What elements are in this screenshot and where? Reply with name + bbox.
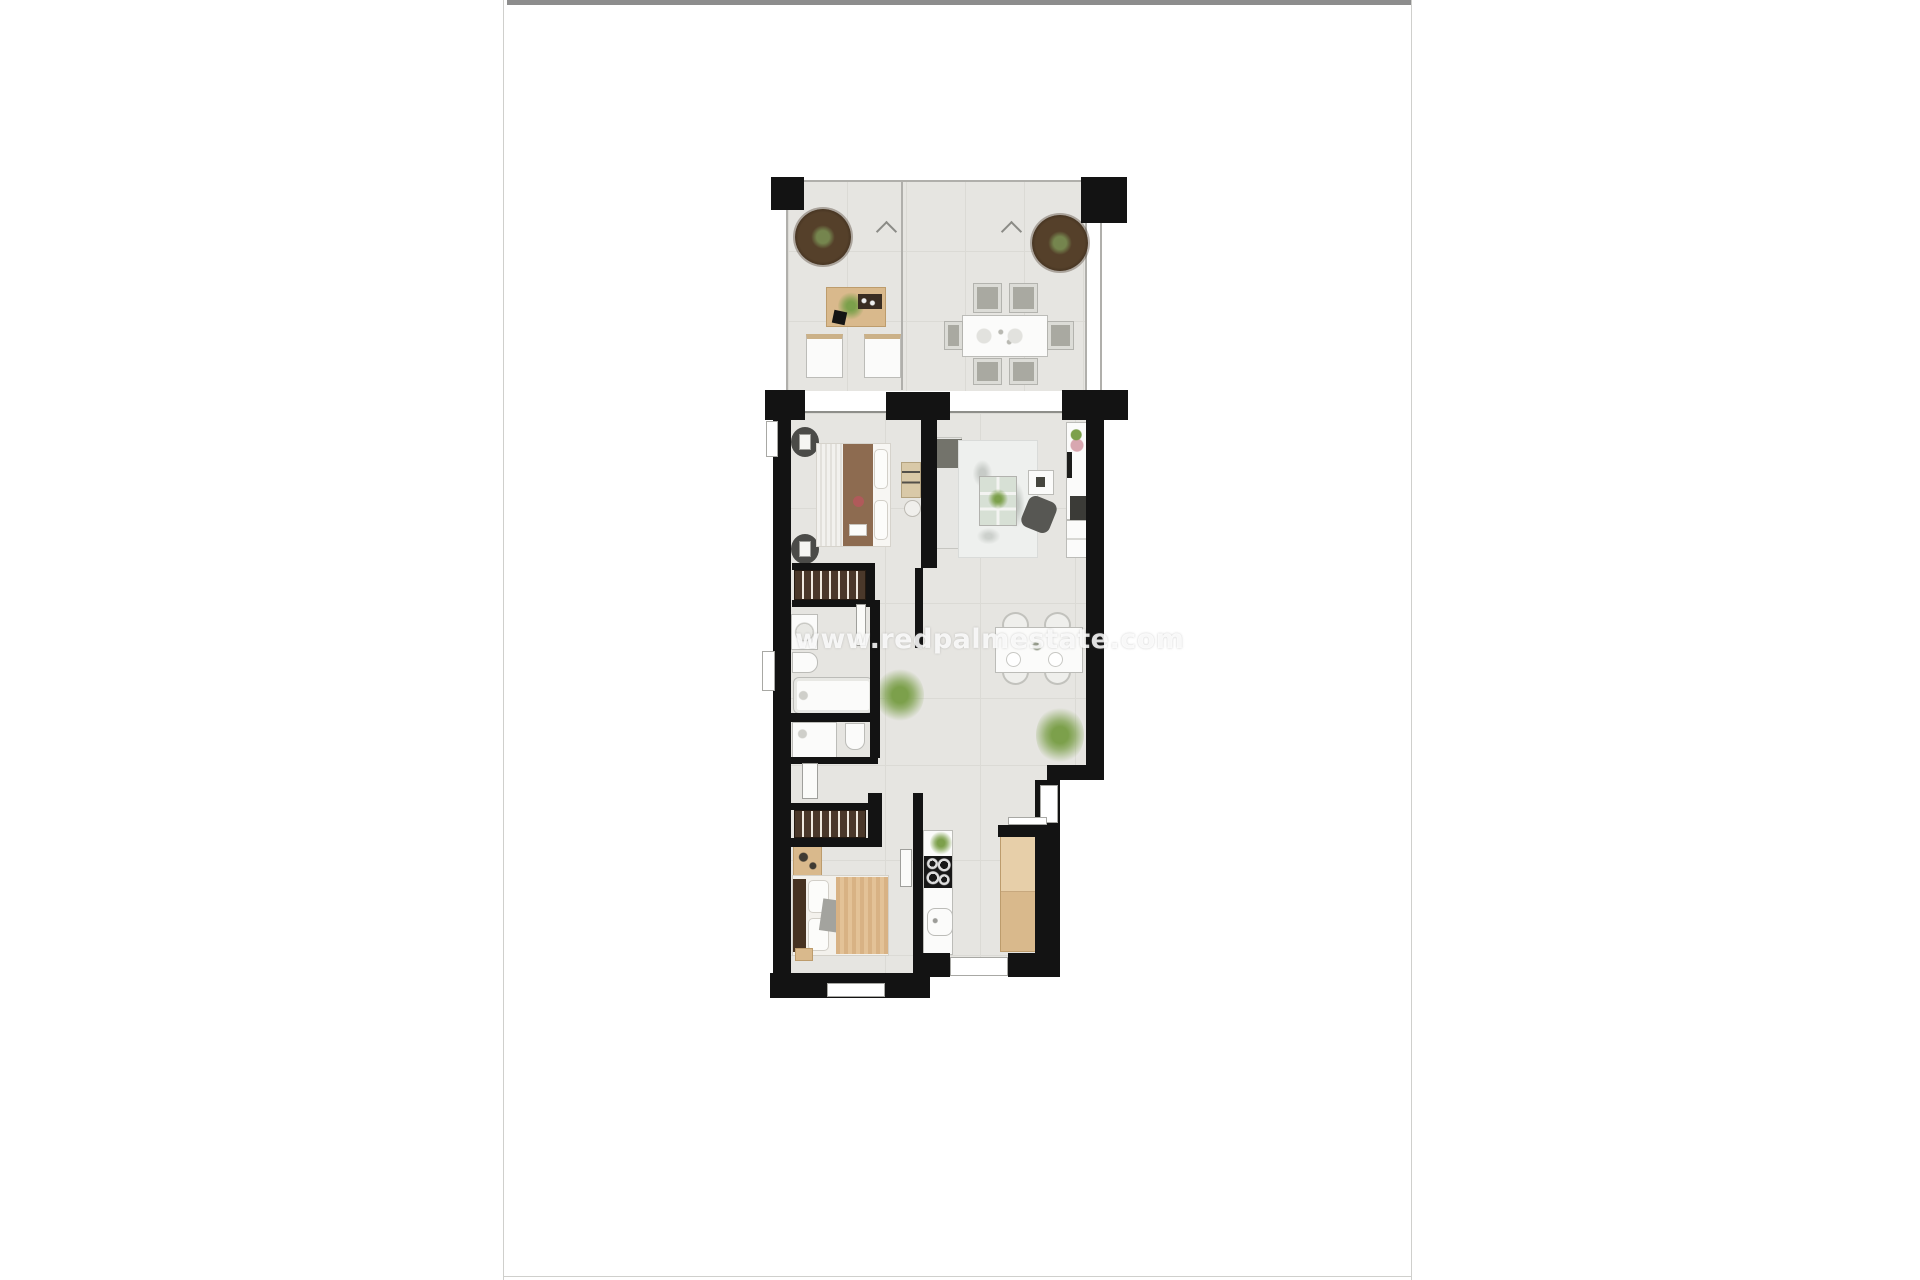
console-flowers	[1069, 427, 1085, 453]
bed-1-sheet	[817, 444, 843, 546]
terrace-tree-planter-1	[795, 209, 851, 265]
bed-1-pillow-2	[874, 500, 888, 540]
pillar-top-left	[771, 177, 804, 210]
window-bathroom1-left	[762, 651, 775, 691]
pillar-top-right	[1081, 177, 1127, 223]
nightstand-lamp-1	[799, 434, 811, 450]
bed-2-blanket	[836, 877, 888, 954]
terrace-dining-chair-5	[944, 321, 963, 350]
terrace-dining-chair-2	[1009, 283, 1038, 313]
wall-wardrobe2-right	[868, 793, 882, 838]
sheet-right-edge	[1411, 0, 1412, 1280]
kitchen-island	[1000, 832, 1037, 952]
toilet-1	[792, 652, 818, 673]
wall-wardrobe2-top	[790, 803, 880, 810]
window-bedroom1-left	[766, 421, 778, 457]
window-kitchen-bottom	[950, 957, 1008, 976]
wall-exterior-left	[773, 413, 791, 998]
terrace-top-line	[788, 180, 1086, 182]
bedside-shelf	[901, 462, 921, 498]
dining-plant	[1036, 706, 1084, 764]
terrace-dining-chair-6	[1047, 321, 1074, 350]
door-bedroom2	[900, 849, 912, 887]
wall-terrace-mid	[886, 392, 950, 420]
wall-step-right	[1047, 765, 1104, 780]
bed-1	[816, 443, 891, 547]
bed-1-tray	[849, 524, 867, 536]
terrace-outer-right-line	[1100, 223, 1102, 413]
wall-bedroom2-kitchen	[913, 793, 923, 973]
sliding-door-living	[950, 411, 1062, 413]
door-lobby	[802, 763, 818, 799]
watermark-text: www.redpalmestate.com	[795, 624, 1184, 655]
terrace-dining-table	[962, 315, 1048, 357]
terrace-dining-chair-4	[1009, 358, 1038, 385]
wardrobe-1	[794, 570, 866, 600]
counter-plant	[930, 831, 952, 855]
wall-kitchen-bottom-right	[1008, 953, 1060, 977]
terrace-armchair-1	[806, 334, 843, 378]
sliding-door-bedroom	[805, 411, 886, 413]
wall-terrace-right-corner	[1062, 390, 1128, 420]
wall-bedroom2-top	[790, 838, 882, 847]
terrace-divider-line	[901, 181, 903, 390]
bed-1-pillow-1	[874, 449, 888, 489]
wall-bedroom1-living	[921, 405, 937, 568]
bed-2	[792, 875, 889, 956]
floorplan-image: www.redpalmestate.com	[0, 0, 1920, 1280]
shower-tray	[792, 722, 837, 758]
terrace-left-line	[786, 210, 788, 392]
terrace-dining-chair-1	[973, 283, 1002, 313]
kitchen-sink	[927, 908, 953, 936]
hall-plant	[876, 668, 924, 722]
nightstand-lamp-2	[799, 541, 811, 557]
terrace-dining-chair-3	[973, 358, 1002, 385]
sheet-bottom-edge	[503, 1276, 1412, 1277]
terrace-armchair-2	[864, 334, 901, 378]
coffee-table-plant	[988, 489, 1008, 509]
sheet-top-bar	[507, 0, 1412, 5]
terrace-tree-planter-2	[1032, 215, 1088, 271]
desk	[793, 846, 822, 877]
bathtub	[793, 677, 873, 714]
bedside-stool	[904, 500, 921, 517]
tv	[1067, 452, 1072, 478]
wardrobe-2	[794, 810, 866, 838]
terrace-table-board	[858, 294, 882, 309]
sheet-left-edge	[503, 0, 504, 1280]
wall-wardrobe1-top	[792, 563, 875, 570]
cooktop	[924, 856, 952, 888]
side-table-decor	[1036, 477, 1045, 487]
window-bedroom2-bottom	[827, 983, 885, 997]
bed-2-headboard	[793, 879, 806, 952]
wall-kitchen-top	[998, 825, 1060, 837]
toilet-2	[845, 723, 865, 750]
bedroom-2-bench	[795, 948, 813, 961]
wall-bathroom-divider	[790, 713, 873, 722]
window-kitchen-right-small	[1008, 817, 1047, 825]
wall-exterior-right	[1086, 420, 1104, 767]
terrace-table-tray	[832, 310, 847, 325]
wall-wardrobe1-bottom	[792, 600, 880, 607]
bed-1-flowers	[853, 496, 864, 507]
